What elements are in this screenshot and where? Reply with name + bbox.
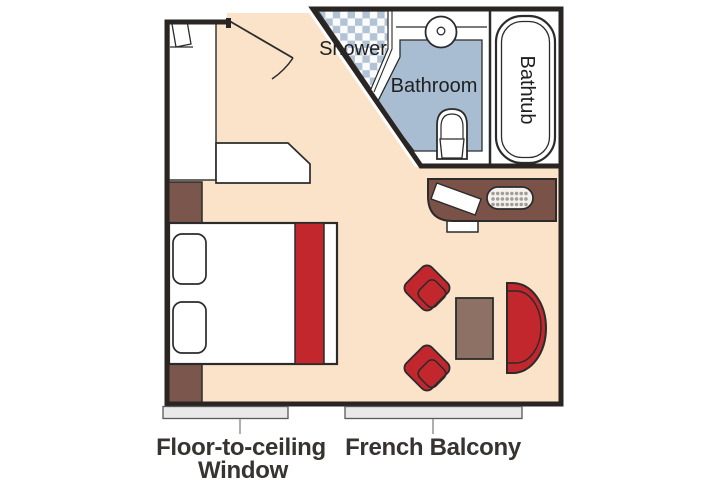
door-jamb-cap bbox=[226, 18, 231, 28]
floor-plan: Shower Bathroom Bathtub Floor-to-ceiling… bbox=[0, 0, 726, 484]
nightstand-bottom bbox=[168, 363, 202, 404]
window-strip bbox=[163, 407, 288, 419]
pillow bbox=[173, 302, 206, 353]
balcony-caption: French Balcony bbox=[345, 434, 522, 461]
closet-door bbox=[172, 21, 191, 47]
floor-plan-canvas: Shower Bathroom Bathtub Floor-to-ceiling… bbox=[0, 0, 726, 484]
sink-drain bbox=[437, 27, 445, 35]
bathtub-label: Bathtub bbox=[516, 56, 538, 125]
coffee-table bbox=[456, 298, 493, 359]
window-caption-line2: Window bbox=[198, 457, 289, 484]
pillow bbox=[173, 234, 206, 284]
nightstand-top bbox=[168, 182, 202, 223]
balcony-strip bbox=[345, 407, 522, 419]
toilet-tank bbox=[440, 139, 464, 158]
bed-runner bbox=[295, 223, 324, 364]
shower-label: Shower bbox=[319, 38, 387, 60]
bathroom-label: Bathroom bbox=[391, 75, 478, 97]
